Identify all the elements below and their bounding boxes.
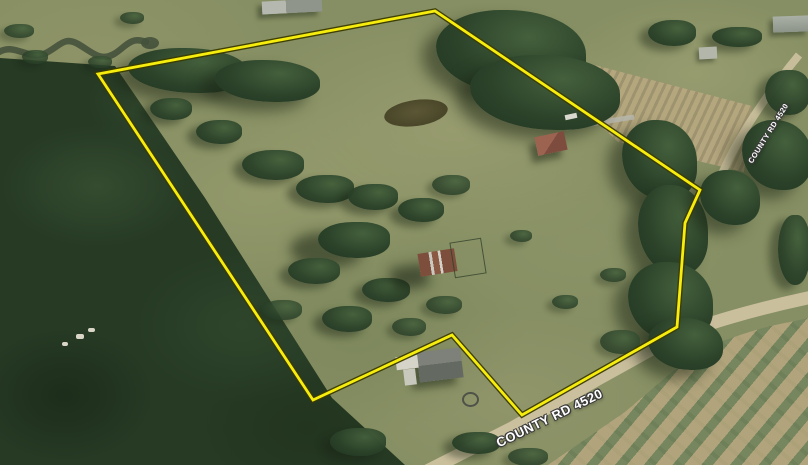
tree-cluster (348, 184, 398, 210)
trailer-speck (76, 334, 84, 339)
tree-cluster (648, 20, 696, 46)
trailer-speck (62, 342, 68, 346)
shed-top-right (699, 47, 718, 60)
tree-cluster (120, 12, 144, 24)
trailer-speck (88, 328, 95, 332)
excluded-house (416, 347, 463, 382)
tree-cluster (510, 230, 532, 242)
tree-cluster (712, 27, 762, 47)
tree-cluster (452, 432, 500, 454)
aerial-map: COUNTY RD 4520 COUNTY RD 4520 (0, 0, 808, 465)
tree-cluster (600, 330, 640, 354)
tree-cluster (88, 56, 112, 68)
tree-cluster (4, 24, 34, 38)
tree-cluster (552, 295, 578, 309)
tree-cluster (262, 300, 302, 320)
tree-cluster (426, 296, 462, 314)
tree-cluster (392, 318, 426, 336)
tree-cluster (150, 98, 192, 120)
tree-cluster (196, 120, 242, 144)
tree-cluster (318, 222, 390, 258)
building-top-right (773, 15, 808, 32)
livestock-pen (449, 238, 486, 279)
tree-cluster (362, 278, 410, 302)
tree-cluster (398, 198, 444, 222)
carport (395, 355, 418, 371)
tree-cluster (22, 50, 48, 64)
tree-cluster (600, 268, 626, 282)
tree-cluster (330, 428, 386, 456)
tree-cluster (778, 215, 808, 285)
round-pen (462, 392, 479, 407)
tree-cluster (508, 448, 548, 465)
white-outbuilding (403, 368, 417, 385)
tree-cluster (432, 175, 470, 195)
tree-cluster (242, 150, 304, 180)
tree-cluster (322, 306, 372, 332)
tree-cluster (296, 175, 354, 203)
tree-cluster (288, 258, 340, 284)
